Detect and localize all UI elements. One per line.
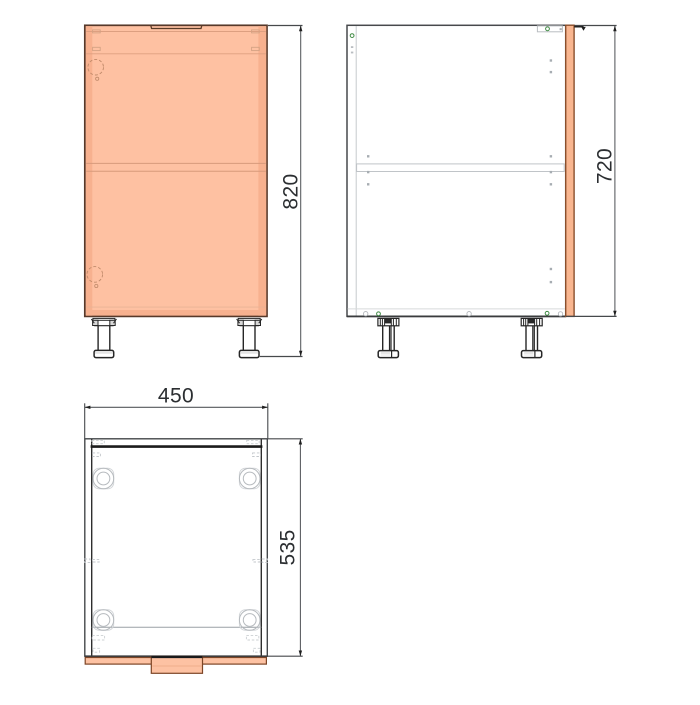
svg-text:820: 820 [280, 173, 303, 209]
svg-text:720: 720 [594, 148, 617, 184]
svg-text:450: 450 [158, 385, 194, 408]
svg-text:535: 535 [277, 529, 300, 565]
